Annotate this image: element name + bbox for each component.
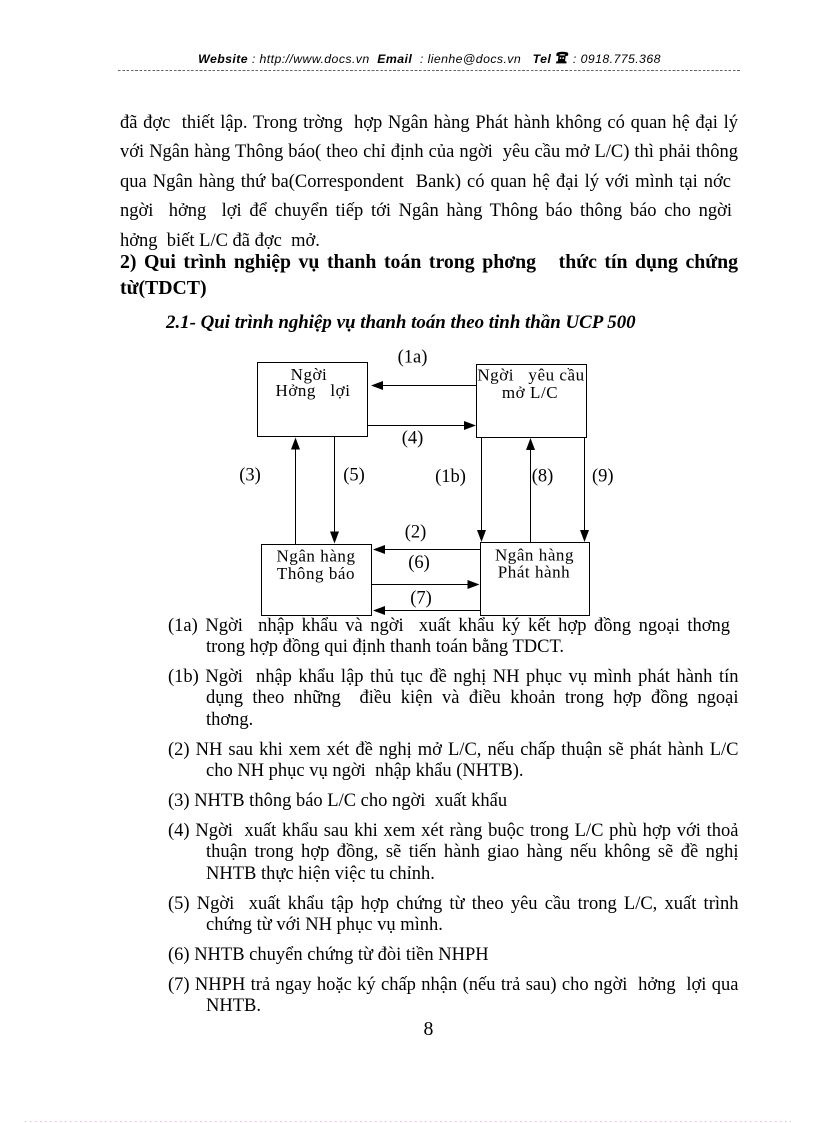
svg-text:mở L/C: mở L/C — [502, 383, 558, 402]
svg-text:(7): (7) — [410, 589, 432, 609]
svg-text:Thông báo: Thông báo — [277, 564, 355, 583]
svg-text:Hởng lợi: Hởng lợi — [276, 381, 351, 400]
svg-text:(8): (8) — [532, 467, 554, 487]
svg-text:(9): (9) — [592, 467, 614, 487]
svg-text:(6): (6) — [408, 553, 430, 573]
svg-text:Ngân hàng: Ngân hàng — [495, 545, 574, 564]
svg-text:(4): (4) — [402, 429, 424, 449]
svg-text:(1b): (1b) — [435, 467, 466, 487]
svg-text:(1a): (1a) — [398, 348, 428, 368]
svg-text:(3): (3) — [239, 466, 261, 486]
svg-text:(5): (5) — [343, 466, 365, 486]
svg-text:Phát hành: Phát hành — [498, 563, 570, 582]
svg-text:Ngời yêu cầu: Ngời yêu cầu — [477, 366, 584, 385]
svg-text:Ngân hàng: Ngân hàng — [276, 547, 355, 566]
svg-text:(2): (2) — [405, 523, 427, 543]
